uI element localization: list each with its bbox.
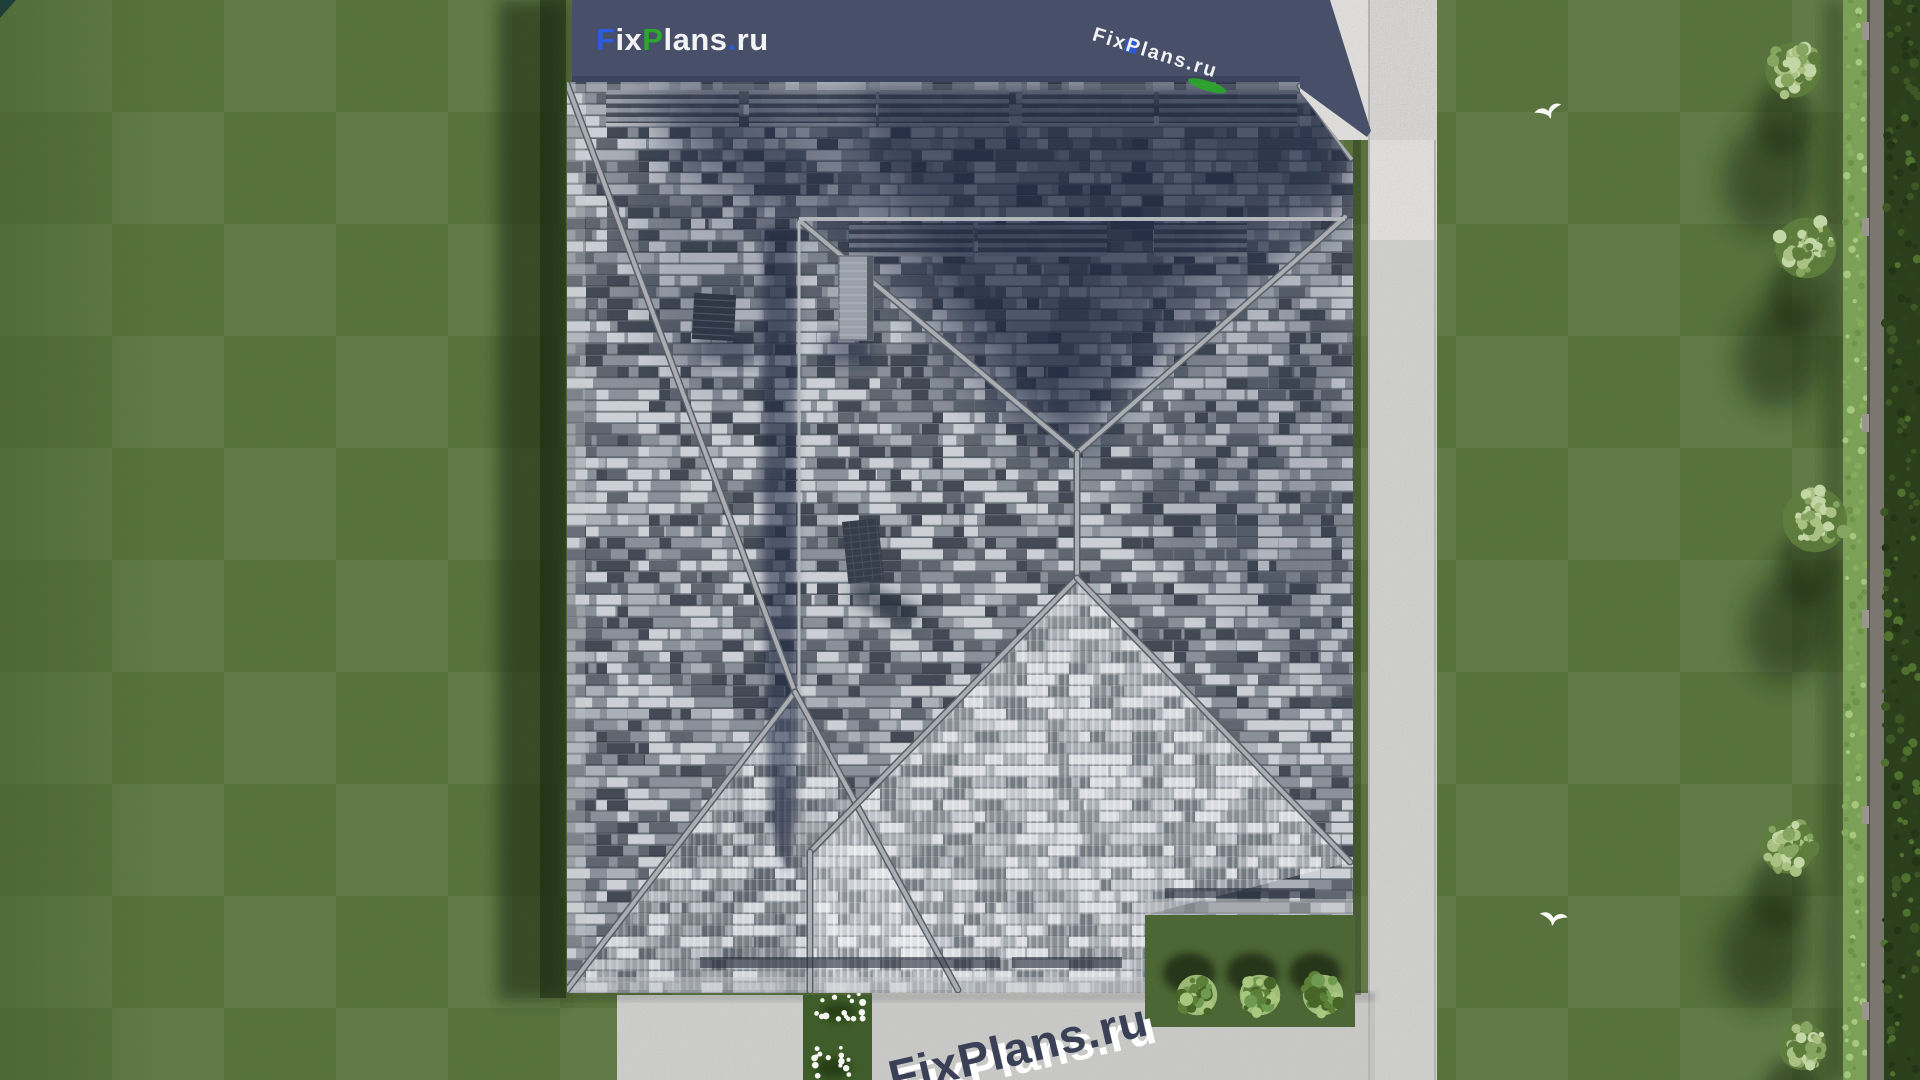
- eave-shadow-band: [1165, 888, 1315, 898]
- roof-surface: [565, 80, 1382, 994]
- hedge-row: [1843, 0, 1867, 1080]
- flower-cluster: [814, 1054, 818, 1058]
- fence-post: [1862, 610, 1869, 628]
- fence-post: [1862, 414, 1869, 432]
- flower-cluster: [814, 1011, 819, 1016]
- logo-letter: lans: [663, 22, 727, 57]
- eave-shadow-band: [700, 957, 1000, 968]
- fence-post: [1862, 1002, 1869, 1020]
- fixplans-logo: FixPlans.ru: [596, 22, 769, 57]
- roof: [565, 80, 1382, 994]
- left-eave: [565, 84, 585, 993]
- flower-cluster: [820, 998, 824, 1002]
- logo-letter: ru: [737, 22, 769, 57]
- flower-cluster: [839, 1046, 843, 1050]
- logo-letter: F: [596, 22, 615, 57]
- flower-cluster: [841, 1059, 845, 1063]
- flower-cluster: [815, 1073, 821, 1079]
- logo-letter: .: [728, 22, 737, 57]
- aerial-house-render: FixPlans.ru FixPlans.ru FixPlans.ru FixP…: [0, 0, 1920, 1080]
- flower-cluster: [843, 1065, 849, 1071]
- left-edge-shade: [0, 0, 170, 1080]
- bottom-eave-right-wing: [1145, 899, 1353, 915]
- flower-cluster: [859, 999, 866, 1006]
- fence-post: [1862, 218, 1869, 236]
- flower-cluster: [832, 995, 837, 1000]
- ground-shadows: [498, 0, 566, 1000]
- house-shadow-left-hard: [540, 0, 566, 998]
- logo-letter: ix: [615, 22, 642, 57]
- flower-cluster: [846, 1058, 850, 1062]
- roof-edge-shadow-strip: [1353, 140, 1361, 995]
- flower-cluster: [850, 999, 855, 1004]
- bottom-eave: [567, 977, 1145, 993]
- flower-cluster: [841, 1010, 847, 1016]
- flower-cluster: [819, 1014, 825, 1020]
- flower-cluster: [846, 1017, 851, 1022]
- flower-cluster: [836, 1016, 841, 1021]
- fence-post: [1862, 22, 1869, 40]
- pavement-texture: [617, 995, 803, 1080]
- flower-cluster: [815, 1046, 820, 1051]
- logo-letter: P: [642, 22, 663, 57]
- flower-cluster: [826, 1055, 831, 1060]
- pavement-texture: [1368, 0, 1437, 1080]
- flower-cluster: [859, 1009, 866, 1016]
- scene-svg: FixPlans.ru FixPlans.ru FixPlans.ru FixP…: [0, 0, 1920, 1080]
- eave-shadow-band: [1012, 957, 1122, 968]
- fence-post: [1862, 806, 1869, 824]
- flower-cluster: [860, 1016, 866, 1022]
- flower-cluster: [847, 994, 851, 998]
- flower-cluster: [812, 1062, 819, 1069]
- flower-cluster: [838, 1052, 844, 1058]
- flower-cluster: [847, 1072, 852, 1077]
- flower-cluster: [851, 1016, 857, 1022]
